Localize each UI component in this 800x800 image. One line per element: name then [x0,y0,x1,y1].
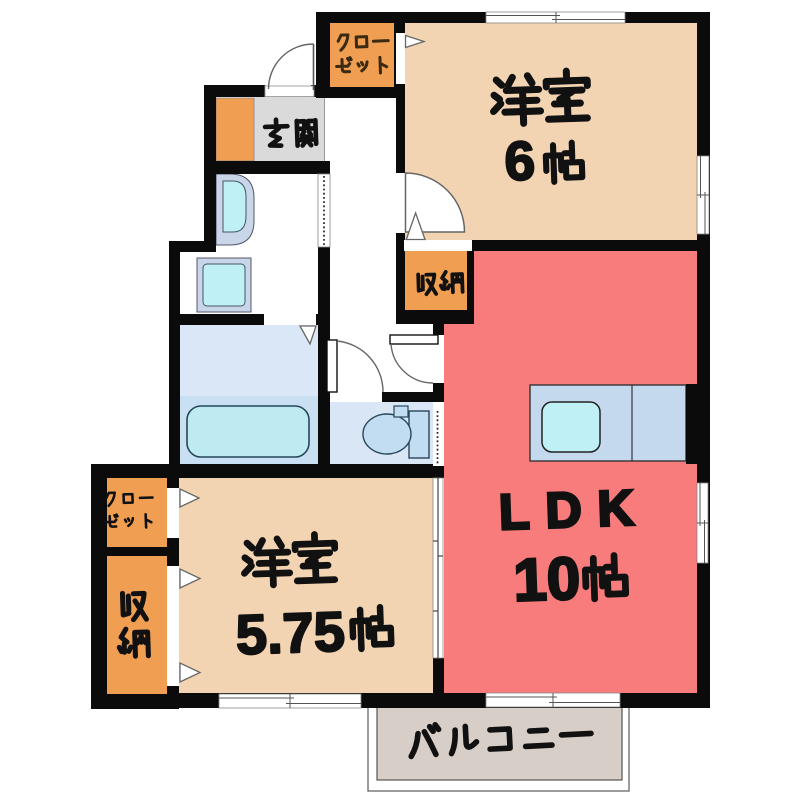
svg-text:5.75: 5.75 [235,599,346,666]
svg-text:LDK: LDK [498,479,651,540]
svg-text:6: 6 [503,129,536,192]
svg-text:10: 10 [512,545,581,614]
